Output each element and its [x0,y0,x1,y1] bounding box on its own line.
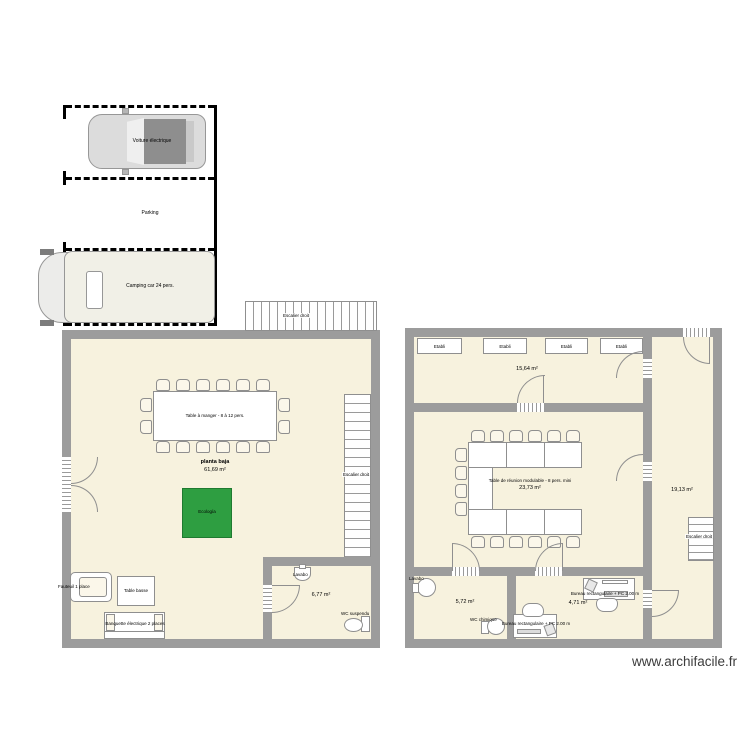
staircase-side-label: Escalier droit [342,472,370,477]
corridor-office-door-leaf [652,590,679,591]
annex-wall-left [405,328,414,648]
corridor-entry-door-hatch [683,328,710,337]
meeting-table-top [468,442,582,468]
annex-wall-corridor-1 [643,337,652,359]
office-chair[interactable] [522,603,544,617]
bathroom-sink-faucet [299,564,306,569]
van-window [86,271,103,309]
chair [176,441,190,453]
corridor-area-label: 19,13 m² [651,487,713,493]
watermark: www.archifacile.fr [632,654,737,669]
chair [256,441,270,453]
shelf-bar [602,580,628,584]
parking-line-top [66,105,214,108]
workbench-1[interactable]: Etabli [417,338,462,354]
van-wheel-top [40,249,54,255]
chair [216,441,230,453]
floor-plan-canvas: Parking Voiture électrique Camping car 2… [0,0,750,750]
workbench-3-label: Etabli [546,344,587,349]
meeting-table-bottom [468,509,582,535]
double-door-hatch [62,457,71,512]
workbench-2[interactable]: Etabli [483,338,527,354]
chair [140,420,152,434]
eco-square-label: Ecología [182,509,232,514]
workshop-door-leaf [543,375,544,403]
chair [176,379,190,391]
chair [455,502,467,516]
table-divider [506,509,507,535]
annex-wall-workshop-b [545,403,652,412]
bench-label: Banquette électrique 2 places [98,621,172,626]
chair [196,441,210,453]
parking-line-divider1 [66,177,214,180]
annex-wall-south-a [405,567,452,576]
meeting-area-label: 23,73 m² [455,485,605,491]
chair [490,536,504,548]
car-mirror-bottom [122,169,129,175]
chair [216,379,230,391]
annex-wall-right [713,328,722,648]
chair [566,536,580,548]
main-wall-right [371,330,380,648]
van-label: Camping car 24 pers. [100,284,200,290]
chair [471,430,485,442]
bathroom-door-hatch [263,585,272,613]
armchair-label: Fauteuil 1 place [58,584,90,589]
bathroom-wall-left-upper [263,557,272,585]
chair [566,430,580,442]
chair [490,430,504,442]
chair [256,379,270,391]
chair [455,448,467,462]
chair [236,379,250,391]
staircase-top-label: Escalier droit [282,313,310,318]
annex-wall-top-left [405,328,683,337]
chair [236,441,250,453]
table-divider [544,509,545,535]
chair [509,430,523,442]
van-wheel-bottom [40,320,54,326]
keyboard-icon [517,629,541,634]
workbench-3[interactable]: Etabli [545,338,588,354]
chair [547,430,561,442]
corridor-entry-door-leaf [709,337,710,364]
car-label: Voiture électrique [112,139,192,145]
dining-table-label: Table à manger - 8 à 12 pers. [155,413,275,418]
floor-name-label: planta baja [175,459,255,465]
bathroom-door-leaf [272,585,300,586]
annex-wall-corridor-2 [643,378,652,462]
washroom-sink-base [412,583,419,593]
main-wall-top [62,330,380,339]
main-wall-bottom [62,639,380,648]
chair [156,379,170,391]
bathroom-sink-label: Lavabo [293,572,308,577]
chair [156,441,170,453]
washroom-sink-label: Lavabo [409,576,424,581]
meeting-table-label: Table de réunion modulable - 8 pers. min… [455,478,605,483]
office-wc-label: WC chimique [470,617,497,622]
workshop-area-label: 15,64 m² [495,366,559,372]
bathroom-wall-left-lower [263,613,272,648]
parking-tick-1 [63,105,66,119]
office-chair[interactable] [596,598,618,612]
chair [509,536,523,548]
parking-label: Parking [120,211,180,217]
floor-area-label: 61,69 m² [175,467,255,473]
bathroom-area-label: 6,77 m² [291,592,351,598]
workbench-1-label: Etabli [418,344,461,349]
staircase-top[interactable] [245,301,377,331]
annex-wall-south-c [563,567,652,576]
chair [471,536,485,548]
workbench-2-label: Etabli [484,344,526,349]
workbench-4-label: Etabli [601,344,642,349]
bathroom-wc[interactable] [344,618,363,632]
meeting-south-door2-leaf [562,543,563,571]
bathroom-wc-label: WC suspendu [341,611,369,616]
meeting-corridor-door-hatch [643,462,652,481]
chair [278,420,290,434]
chair [528,536,542,548]
car-mirror-top [122,108,129,114]
parking-tick-2 [63,171,66,185]
table-divider [544,442,545,468]
table-divider [506,442,507,468]
office-desk-right-label: Bureau rectangulaire + PC 2.00 m [570,591,640,596]
coffee-table-label: Table basse [113,588,159,593]
bathroom-wall-top [263,557,380,566]
corridor-office-door-hatch [643,590,652,608]
office-desk-bottom-label: Bureau rectangulaire + PC 2.00 m [498,621,574,626]
bench-back-line [105,631,164,632]
chair [140,398,152,412]
parking-line-bottom [66,323,214,326]
chair [278,398,290,412]
washroom-area-label: 5,72 m² [435,599,495,605]
annex-wall-corridor-4 [643,608,652,639]
chair [528,430,542,442]
annex-wall-south-b [480,567,535,576]
annex-wall-workshop-a [405,403,517,412]
workshop-corridor-door-hatch [643,359,652,378]
corridor-staircase-label: Escalier droit [685,534,713,539]
workshop-door-hatch [517,403,545,412]
annex-wall-bottom [405,639,722,648]
chair [196,379,210,391]
meeting-south-door1-leaf [452,543,453,571]
